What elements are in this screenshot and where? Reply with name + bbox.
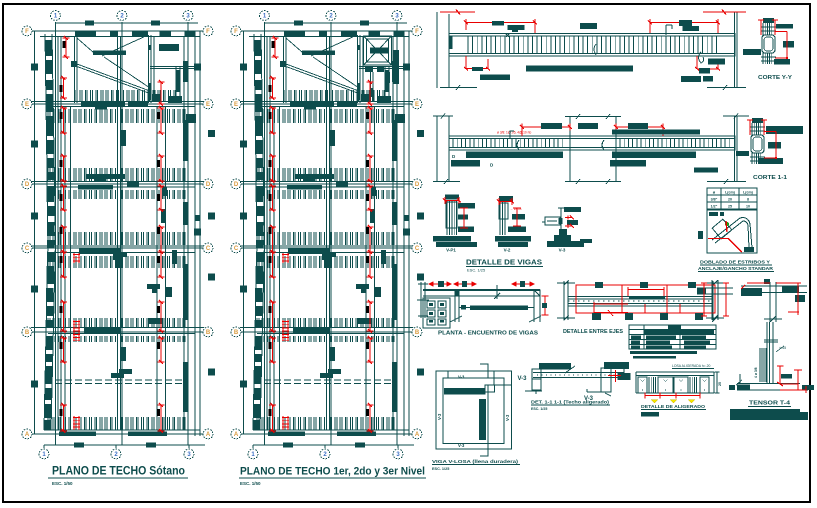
svg-text:E: E <box>415 102 419 108</box>
svg-text:A: A <box>415 432 420 438</box>
svg-text:→ e=.05: → e=.05 <box>510 207 522 211</box>
svg-text:D: D <box>206 182 211 188</box>
svg-text:E: E <box>25 102 29 108</box>
svg-text:D: D <box>25 182 30 188</box>
svg-text:F: F <box>25 29 29 35</box>
svg-text:CORTE 1-1: CORTE 1-1 <box>753 175 787 181</box>
svg-text:25: 25 <box>718 382 722 386</box>
svg-text:V-3: V-3 <box>518 376 528 382</box>
svg-text:B: B <box>234 330 239 336</box>
svg-text:20: 20 <box>728 198 732 202</box>
svg-text:V-3: V-3 <box>437 413 442 420</box>
svg-text:PLANTA - ENCUENTRO DE VIGAS: PLANTA - ENCUENTRO DE VIGAS <box>438 331 539 337</box>
svg-text:10: 10 <box>746 205 750 209</box>
svg-text:ESC. 1/25: ESC. 1/25 <box>432 467 449 471</box>
svg-text:PLANO DE TECHO 1er, 2do y 3er: PLANO DE TECHO 1er, 2do y 3er Nivel <box>240 466 425 478</box>
svg-text:DETALLE DE ALIGERADO: DETALLE DE ALIGERADO <box>641 404 705 409</box>
svg-text:F: F <box>206 29 210 35</box>
svg-text:+.45: +.45 <box>779 346 786 350</box>
svg-text:B: B <box>25 330 30 336</box>
svg-text:C: C <box>25 246 30 252</box>
svg-text:TENSOR T-4: TENSOR T-4 <box>749 401 791 407</box>
svg-text:3/8": 3/8" <box>711 198 718 202</box>
svg-text:C: C <box>234 246 239 252</box>
svg-text:V-3: V-3 <box>559 248 566 253</box>
svg-text:ESC. 1/50: ESC. 1/50 <box>240 481 261 486</box>
svg-text:PLANO DE TECHO Sótano: PLANO DE TECHO Sótano <box>52 466 185 478</box>
svg-text:DET. 1-1 1-1 (Techo aligerado: DET. 1-1 1-1 (Techo aligerado) <box>531 400 610 405</box>
svg-text:A: A <box>206 432 211 438</box>
svg-text:B: B <box>415 330 420 336</box>
svg-text:F: F <box>234 29 238 35</box>
svg-text:4 ø 3/8: 4 ø 3/8 <box>754 367 758 378</box>
svg-text:8: 8 <box>747 198 749 202</box>
svg-text:C: C <box>206 246 211 252</box>
svg-text:ø 3/8: 1@.05, 4@.10 rto: ø 3/8: 1@.05, 4@.10 rto <box>497 131 532 135</box>
svg-text:V-P1: V-P1 <box>446 248 456 253</box>
svg-text:L(cm): L(cm) <box>743 191 754 195</box>
svg-text:E: E <box>234 102 238 108</box>
svg-text:A: A <box>234 432 239 438</box>
svg-text:1/2": 1/2" <box>711 205 718 209</box>
svg-text:A: A <box>25 432 30 438</box>
svg-text:ESC. 1/50: ESC. 1/50 <box>52 481 73 486</box>
svg-text:V-3: V-3 <box>458 443 465 448</box>
svg-text:ESC. 1/25: ESC. 1/25 <box>531 407 547 411</box>
svg-text:B: B <box>206 330 211 336</box>
svg-text:V-3: V-3 <box>505 414 510 421</box>
svg-text:D: D <box>234 182 239 188</box>
svg-text:C: C <box>415 246 420 252</box>
svg-text:ESC. 1/25: ESC. 1/25 <box>467 268 486 273</box>
svg-text:L(cm): L(cm) <box>725 191 736 195</box>
svg-text:LOSA ALIGERADA h=.20: LOSA ALIGERADA h=.20 <box>672 364 710 368</box>
svg-text:25: 25 <box>728 205 732 209</box>
svg-text:D: D <box>415 182 420 188</box>
svg-text:V-3: V-3 <box>458 375 465 380</box>
svg-text:E: E <box>206 102 210 108</box>
svg-text:ANCLAJE/GANCHO STANDAR: ANCLAJE/GANCHO STANDAR <box>698 266 774 271</box>
svg-text:DETALLE DE VIGAS: DETALLE DE VIGAS <box>466 260 542 267</box>
svg-text:F: F <box>415 29 419 35</box>
svg-text:V-2: V-2 <box>504 248 511 253</box>
svg-text:DOBLADO DE ESTRIBOS Y: DOBLADO DE ESTRIBOS Y <box>700 260 770 265</box>
svg-text:CORTE Y-Y: CORTE Y-Y <box>758 75 792 81</box>
svg-text:DETALLE ENTRE EJES: DETALLE ENTRE EJES <box>563 329 624 335</box>
